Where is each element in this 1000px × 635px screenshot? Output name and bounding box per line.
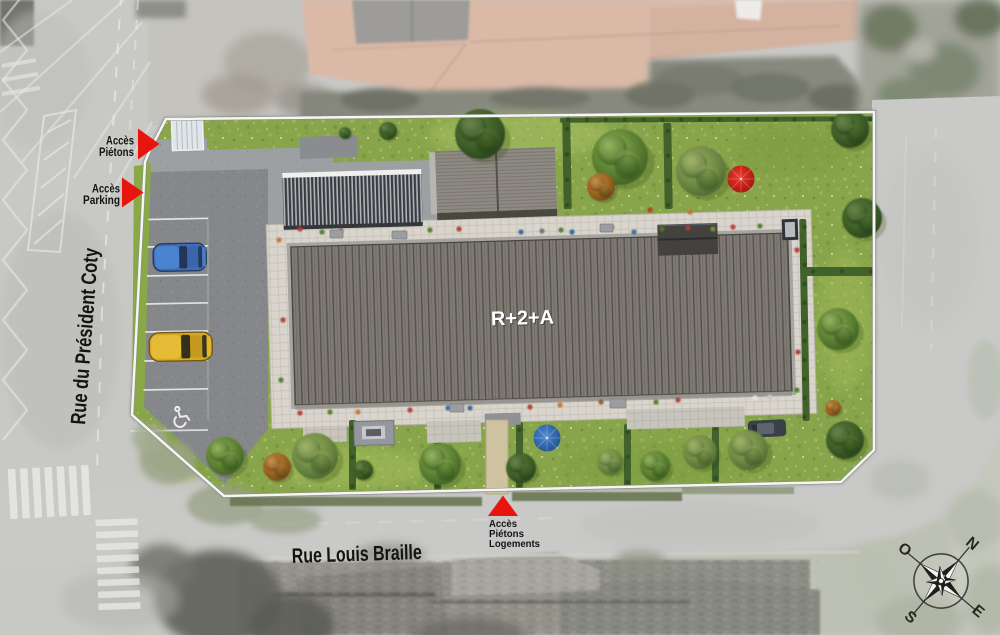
svg-text:R+2+A: R+2+A bbox=[491, 307, 555, 331]
svg-text:Rue Louis Braille: Rue Louis Braille bbox=[291, 541, 422, 568]
svg-text:Logements: Logements bbox=[489, 539, 540, 550]
svg-text:Piétons: Piétons bbox=[99, 147, 134, 159]
svg-text:Accès: Accès bbox=[92, 184, 120, 196]
svg-text:Parking: Parking bbox=[83, 195, 120, 207]
svg-text:Accès: Accès bbox=[106, 136, 134, 148]
